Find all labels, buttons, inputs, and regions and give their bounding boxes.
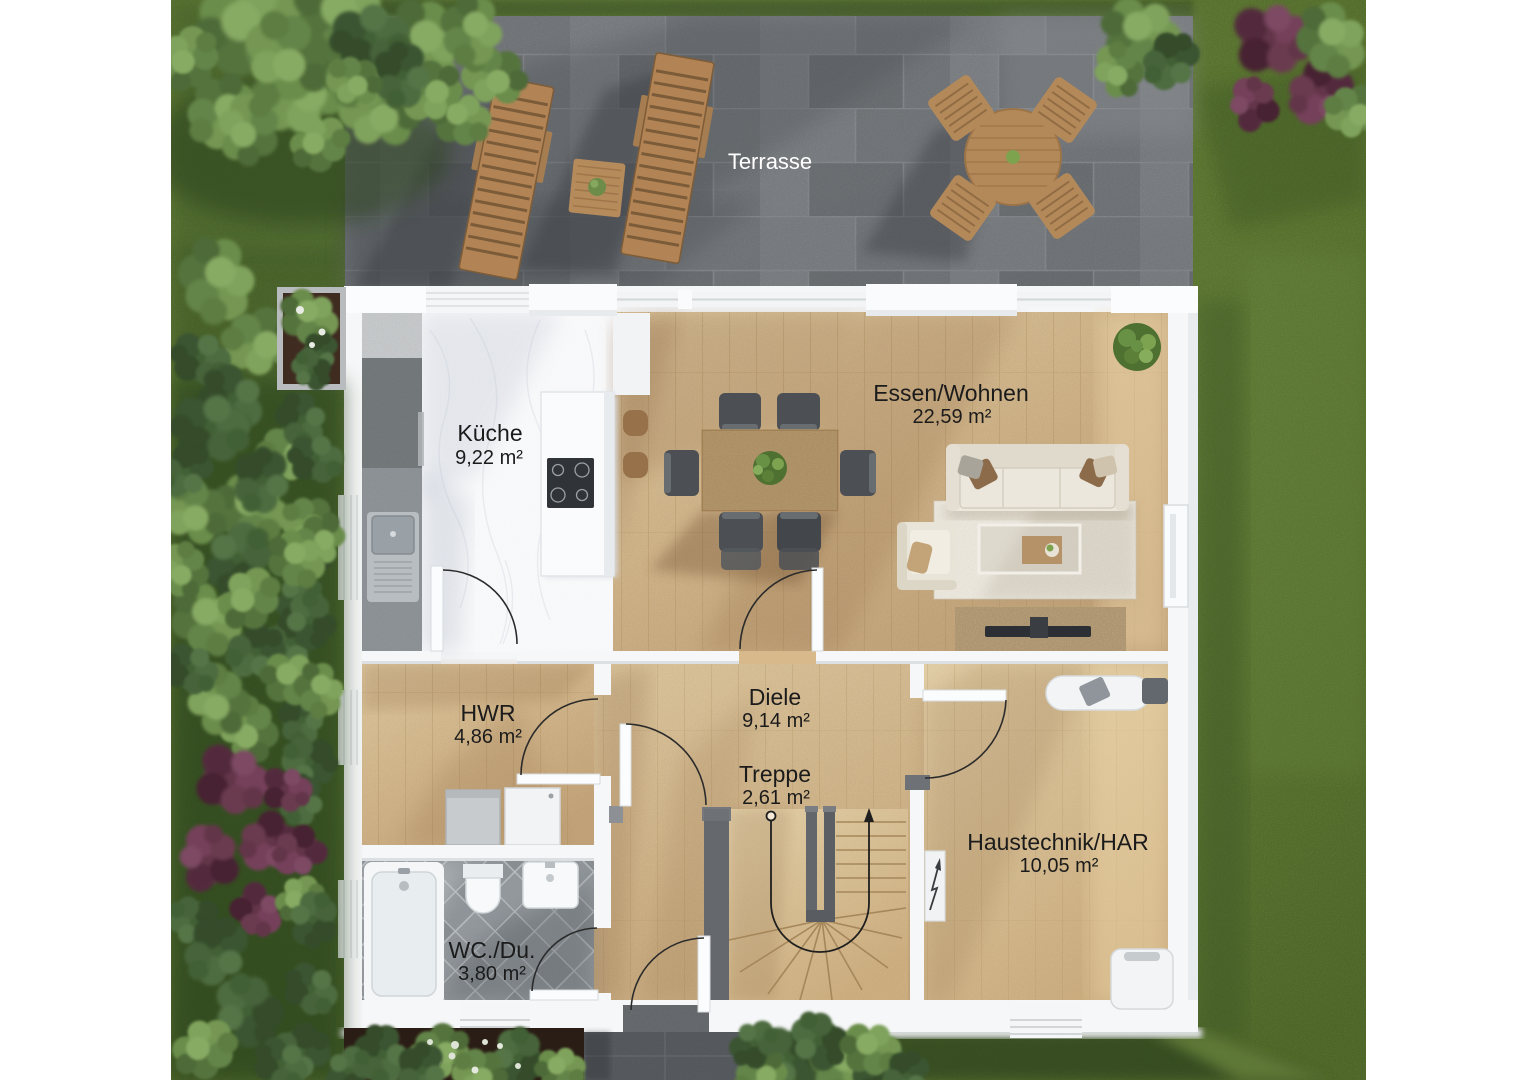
svg-text:Essen/Wohnen: Essen/Wohnen (873, 380, 1029, 406)
svg-text:HWR: HWR (461, 700, 516, 726)
svg-text:Treppe: Treppe (739, 761, 811, 787)
svg-text:4,86 m²: 4,86 m² (454, 726, 522, 748)
svg-text:Terrasse: Terrasse (728, 149, 812, 174)
svg-text:22,59 m²: 22,59 m² (913, 406, 992, 428)
svg-text:Haustechnik/HAR: Haustechnik/HAR (967, 829, 1149, 855)
svg-text:9,14 m²: 9,14 m² (742, 710, 810, 732)
svg-text:9,22 m²: 9,22 m² (455, 447, 523, 469)
svg-text:WC./Du.: WC./Du. (449, 937, 536, 963)
svg-text:Küche: Küche (457, 420, 522, 446)
svg-text:Diele: Diele (749, 684, 801, 710)
svg-text:2,61 m²: 2,61 m² (742, 787, 810, 809)
svg-text:10,05 m²: 10,05 m² (1020, 855, 1099, 877)
svg-text:3,80 m²: 3,80 m² (458, 963, 526, 985)
